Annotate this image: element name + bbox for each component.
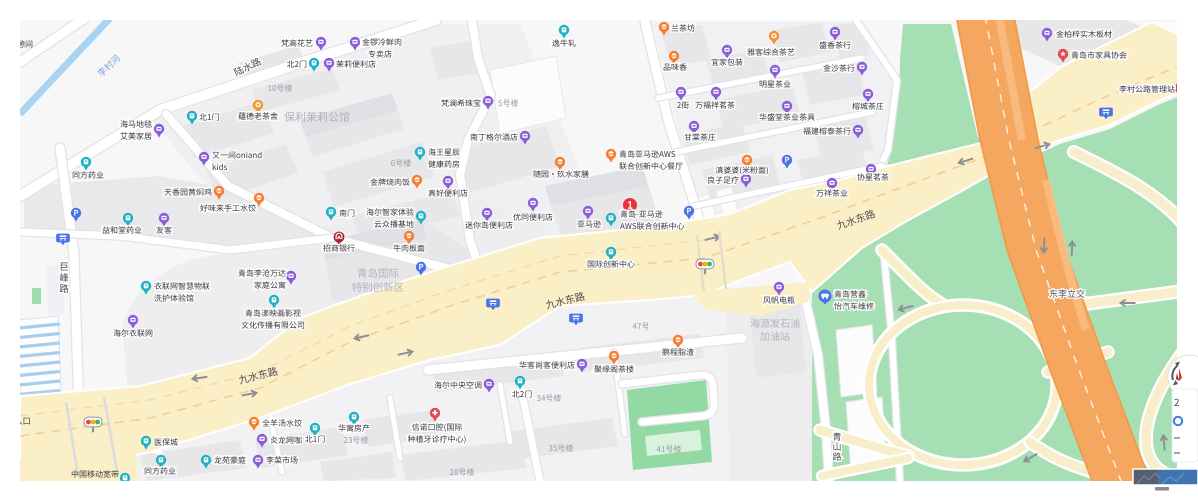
svg-text:万福祥茗茶: 万福祥茗茶: [695, 100, 735, 111]
svg-text:华盛堂茶业茶具: 华盛堂茶业茶具: [759, 112, 815, 123]
svg-text:青岛-亚马逊: 青岛-亚马逊: [620, 209, 663, 220]
svg-text:品味香: 品味香: [663, 62, 687, 73]
svg-text:2: 2: [1174, 394, 1180, 409]
svg-text:福建榕泰茶行: 福建榕泰茶行: [803, 126, 851, 137]
svg-text:南门: 南门: [339, 208, 355, 219]
svg-text:5号楼: 5号楼: [498, 98, 518, 109]
svg-text:6号楼: 6号楼: [391, 158, 411, 169]
svg-text:金沙茶行: 金沙茶行: [823, 63, 855, 74]
svg-text:同方药业: 同方药业: [72, 170, 104, 181]
svg-text:东李立交: 东李立交: [1049, 287, 1085, 300]
svg-text:医保城: 医保城: [154, 437, 178, 448]
svg-text:健康药房: 健康药房: [428, 159, 460, 170]
svg-text:金牌烧肉饭: 金牌烧肉饭: [370, 177, 410, 188]
svg-text:华客尚客便利店: 华客尚客便利店: [519, 360, 575, 371]
svg-text:艾美家居: 艾美家居: [120, 131, 152, 142]
svg-text:全羊汤水饺: 全羊汤水饺: [262, 418, 302, 429]
svg-text:文化传播有限公司: 文化传播有限公司: [241, 320, 305, 331]
svg-text:kids: kids: [212, 162, 228, 173]
svg-text:中国移动宽带: 中国移动宽带: [71, 469, 119, 480]
svg-text:益和堂药业: 益和堂药业: [102, 225, 142, 236]
svg-text:特别创新区: 特别创新区: [352, 280, 405, 295]
svg-text:招商银行: 招商银行: [323, 243, 355, 254]
svg-text:北1门: 北1门: [305, 434, 325, 445]
svg-text:李村公路管理站: 李村公路管理站: [1119, 84, 1175, 95]
svg-text:加油站: 加油站: [760, 328, 790, 343]
svg-text:青岛营鑫: 青岛营鑫: [834, 289, 866, 300]
svg-text:保利茉莉公馆: 保利茉莉公馆: [284, 109, 350, 125]
svg-text:好味来手工水饺: 好味来手工水饺: [200, 203, 256, 214]
svg-text:鹏程脂渣: 鹏程脂渣: [662, 347, 694, 358]
svg-text:北2门: 北2门: [512, 389, 532, 400]
svg-text:榕城茶庄: 榕城茶庄: [852, 101, 884, 112]
svg-text:10号楼: 10号楼: [268, 83, 293, 94]
svg-text:青岛亚马逊AWS: 青岛亚马逊AWS: [619, 149, 676, 160]
svg-text:龙苑豪庭: 龙苑豪庭: [214, 455, 246, 466]
svg-text:海尔智家体验: 海尔智家体验: [366, 207, 414, 218]
svg-text:北2门: 北2门: [287, 59, 307, 70]
svg-text:青岛漾映画影视: 青岛漾映画影视: [245, 308, 301, 319]
svg-text:海马地毯: 海马地毯: [120, 119, 152, 130]
svg-text:蕴德老茶舍: 蕴德老茶舍: [238, 111, 278, 122]
svg-text:梵澜希珠宝: 梵澜希珠宝: [441, 98, 481, 109]
svg-text:真好便利店: 真好便利店: [428, 188, 468, 199]
svg-text:优同便利店: 优同便利店: [513, 212, 553, 223]
svg-text:亚马逊: 亚马逊: [577, 219, 601, 230]
svg-text:家庭公寓: 家庭公寓: [254, 280, 286, 291]
svg-text:北1门: 北1门: [199, 112, 219, 123]
svg-text:41号楼: 41号楼: [657, 444, 682, 455]
svg-text:盛香茶行: 盛香茶行: [819, 40, 851, 51]
svg-text:47号: 47号: [633, 321, 650, 332]
svg-text:天香园黄焖鸡: 天香园黄焖鸡: [164, 187, 212, 198]
svg-text:路: 路: [832, 450, 841, 463]
svg-text:青岛市家具协会: 青岛市家具协会: [1071, 50, 1127, 61]
svg-text:23号楼: 23号楼: [344, 435, 369, 446]
svg-text:炎龙网咖: 炎龙网咖: [270, 435, 302, 446]
svg-text:路: 路: [59, 281, 69, 295]
svg-text:李菜市场: 李菜市场: [266, 455, 298, 466]
svg-text:风帆电瓶: 风帆电瓶: [763, 295, 795, 306]
svg-text:协星茗茶: 协星茗茶: [857, 172, 889, 183]
svg-text:海尔衣联网: 海尔衣联网: [113, 328, 153, 339]
svg-text:华寓房产: 华寓房产: [338, 423, 370, 434]
svg-text:随园·玖水家膳: 随园·玖水家膳: [533, 169, 589, 180]
svg-text:又一间oniand: 又一间oniand: [212, 150, 262, 161]
svg-text:明星茶业: 明星茶业: [759, 79, 791, 90]
svg-text:南丁格尔酒店: 南丁格尔酒店: [470, 132, 518, 143]
svg-text:友客: 友客: [156, 225, 172, 236]
svg-text:甘棠茶庄: 甘棠茶庄: [684, 132, 716, 143]
svg-text:牛肉板面: 牛肉板面: [393, 243, 425, 254]
svg-text:梵高花艺: 梵高花艺: [281, 38, 313, 49]
svg-text:逸牛轧: 逸牛轧: [552, 38, 576, 49]
svg-text:28号楼: 28号楼: [450, 467, 475, 478]
svg-text:聚缘阁茶楼: 聚缘阁茶楼: [594, 364, 634, 375]
svg-text:海王星辰: 海王星辰: [428, 147, 460, 158]
svg-text:衣联网智慧物联: 衣联网智慧物联: [154, 281, 210, 292]
svg-text:云众播基地: 云众播基地: [374, 219, 414, 230]
svg-text:同方药业: 同方药业: [144, 466, 176, 477]
svg-text:联合创新中心餐厅: 联合创新中心餐厅: [619, 161, 683, 172]
svg-text:迷你岛便利店: 迷你岛便利店: [465, 220, 513, 231]
svg-text:2街: 2街: [677, 100, 689, 111]
svg-text:金柏梓实木板材: 金柏梓实木板材: [1056, 29, 1112, 40]
svg-text:35号楼: 35号楼: [549, 443, 574, 454]
svg-text:良子足疗: 良子足疗: [707, 175, 739, 186]
svg-text:兰茶坊: 兰茶坊: [671, 23, 695, 34]
svg-text:洗护体验馆: 洗护体验馆: [154, 293, 194, 304]
svg-text:怡汽车维修: 怡汽车维修: [834, 301, 874, 312]
svg-text:信诺口腔(国际: 信诺口腔(国际: [412, 422, 463, 433]
svg-text:种植牙诊疗中心): 种植牙诊疗中心): [408, 434, 467, 445]
svg-text:万祥茶业: 万祥茶业: [816, 188, 848, 199]
svg-text:茉莉便利店: 茉莉便利店: [336, 59, 376, 70]
svg-text:海尔中央空调: 海尔中央空调: [434, 380, 482, 391]
svg-text:雅客综合茶艺: 雅客综合茶艺: [747, 47, 795, 58]
svg-text:宜家包装: 宜家包装: [711, 57, 743, 68]
svg-text:青岛李沧万达: 青岛李沧万达: [238, 268, 286, 279]
svg-text:金锣冷鲜肉: 金锣冷鲜肉: [362, 37, 402, 48]
svg-text:国际创新中心: 国际创新中心: [587, 259, 635, 270]
svg-text:34号楼: 34号楼: [537, 393, 562, 404]
svg-text:AWS联合创新中心: AWS联合创新中心: [620, 221, 685, 232]
svg-text:青岛国际: 青岛国际: [357, 266, 399, 281]
